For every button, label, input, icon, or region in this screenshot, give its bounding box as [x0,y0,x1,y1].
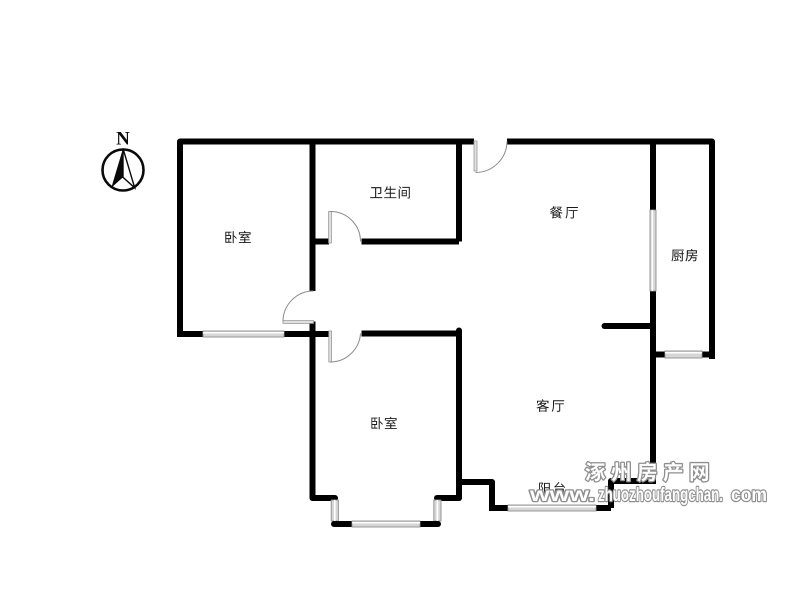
svg-text:www.zhuozhoufangchan.com: www.zhuozhoufangchan.com [529,485,767,506]
svg-text:N: N [116,129,130,150]
